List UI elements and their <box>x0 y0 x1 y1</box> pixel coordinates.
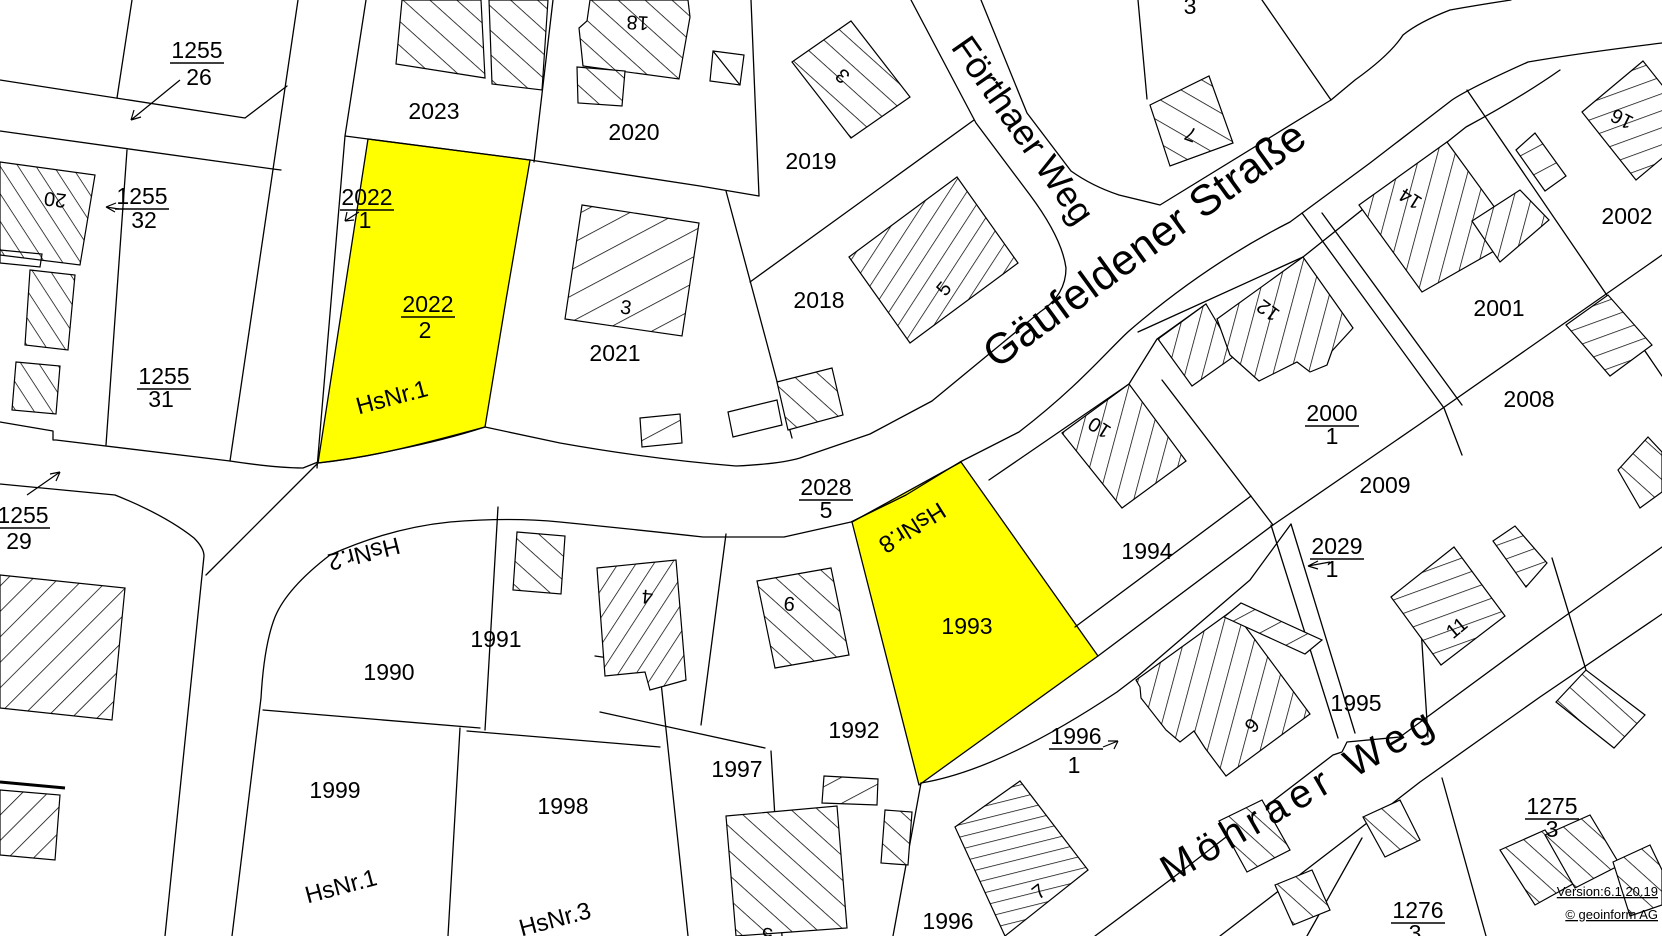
svg-text:2022: 2022 <box>402 291 453 317</box>
svg-text:4: 4 <box>641 585 654 608</box>
svg-text:2020: 2020 <box>608 119 659 145</box>
svg-text:1998: 1998 <box>537 793 588 819</box>
svg-text:5: 5 <box>820 497 833 523</box>
svg-text:1255: 1255 <box>116 183 167 209</box>
svg-text:5: 5 <box>761 923 774 936</box>
svg-text:1: 1 <box>359 207 372 233</box>
svg-text:3: 3 <box>1184 0 1197 19</box>
svg-text:1999: 1999 <box>309 777 360 803</box>
svg-text:1997: 1997 <box>711 756 762 782</box>
svg-text:1993: 1993 <box>941 613 992 639</box>
svg-text:3: 3 <box>1546 816 1559 842</box>
svg-text:31: 31 <box>148 386 174 412</box>
svg-text:18: 18 <box>626 10 649 33</box>
svg-text:9: 9 <box>783 592 796 615</box>
svg-text:1994: 1994 <box>1121 538 1172 564</box>
svg-text:1991: 1991 <box>470 626 521 652</box>
svg-text:2021: 2021 <box>589 340 640 366</box>
svg-text:1: 1 <box>1326 423 1339 449</box>
svg-text:2023: 2023 <box>408 98 459 124</box>
svg-text:1992: 1992 <box>828 717 879 743</box>
svg-text:2: 2 <box>419 317 432 343</box>
svg-text:3: 3 <box>1409 920 1422 936</box>
svg-text:1990: 1990 <box>363 659 414 685</box>
svg-text:1: 1 <box>1068 752 1081 778</box>
svg-text:26: 26 <box>186 64 212 90</box>
svg-text:1255: 1255 <box>171 37 222 63</box>
svg-text:2002: 2002 <box>1601 203 1652 229</box>
svg-text:1255: 1255 <box>0 502 49 528</box>
svg-text:2018: 2018 <box>793 287 844 313</box>
svg-text:1995: 1995 <box>1330 690 1381 716</box>
svg-text:© geoinform AG: © geoinform AG <box>1565 907 1658 922</box>
svg-text:32: 32 <box>131 207 157 233</box>
svg-text:2009: 2009 <box>1359 472 1410 498</box>
svg-text:2001: 2001 <box>1473 295 1524 321</box>
svg-text:1: 1 <box>1326 556 1339 582</box>
svg-text:29: 29 <box>6 528 32 554</box>
svg-text:1996: 1996 <box>922 908 973 934</box>
svg-text:Version:6.1.20.19: Version:6.1.20.19 <box>1557 884 1658 899</box>
svg-text:2019: 2019 <box>785 148 836 174</box>
svg-text:1996: 1996 <box>1050 723 1101 749</box>
svg-text:20: 20 <box>43 187 68 212</box>
svg-text:2008: 2008 <box>1503 386 1554 412</box>
